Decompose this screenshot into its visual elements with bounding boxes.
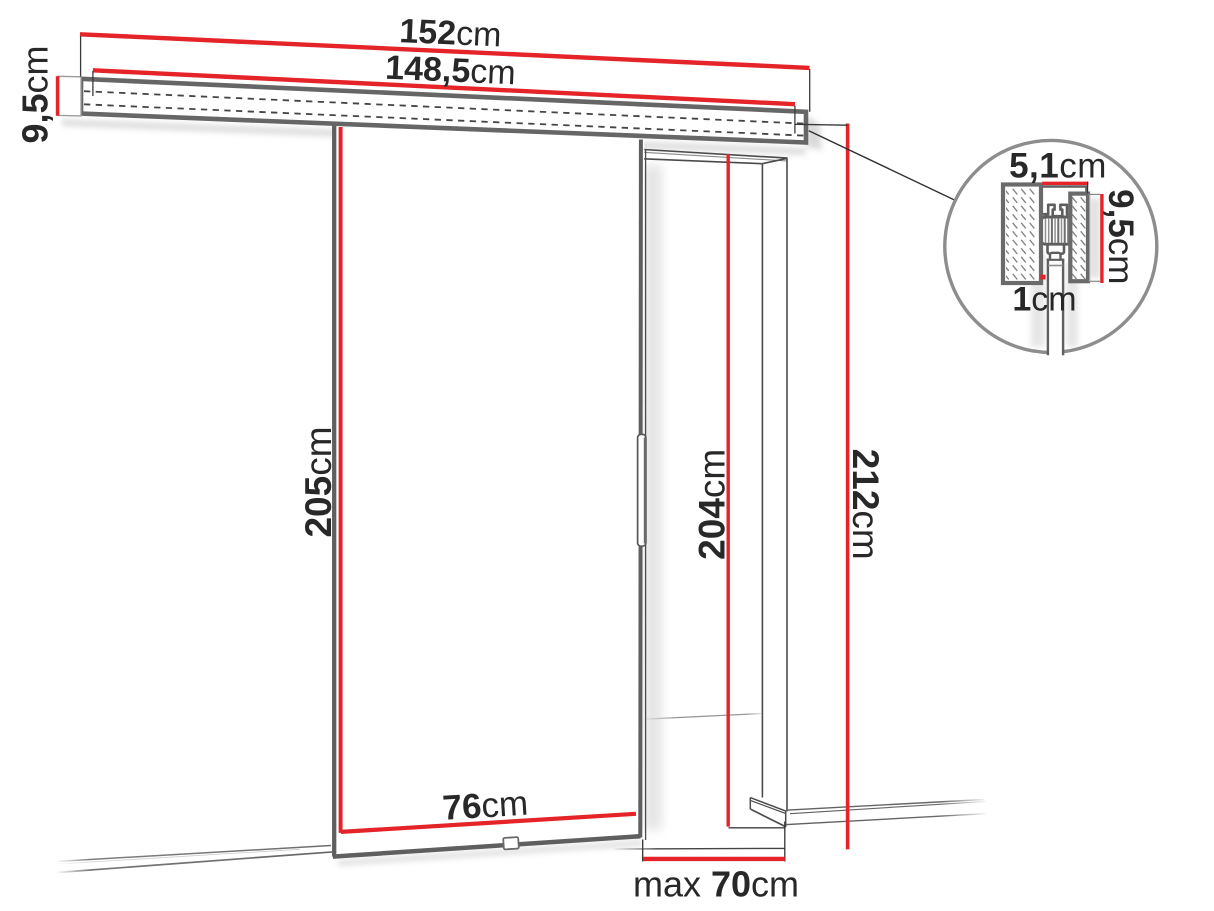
svg-text:148,5cm: 148,5cm xyxy=(385,49,517,93)
svg-text:9,5cm: 9,5cm xyxy=(1101,189,1140,284)
svg-text:152cm: 152cm xyxy=(399,12,503,54)
svg-text:212cm: 212cm xyxy=(845,449,886,560)
svg-text:76cm: 76cm xyxy=(441,784,529,828)
svg-text:5,1cm: 5,1cm xyxy=(1009,147,1107,186)
svg-text:9,5cm: 9,5cm xyxy=(15,45,56,143)
svg-text:205cm: 205cm xyxy=(298,426,339,537)
svg-text:max 70cm: max 70cm xyxy=(633,864,799,905)
svg-text:204cm: 204cm xyxy=(692,449,733,560)
svg-text:1cm: 1cm xyxy=(1012,280,1076,318)
